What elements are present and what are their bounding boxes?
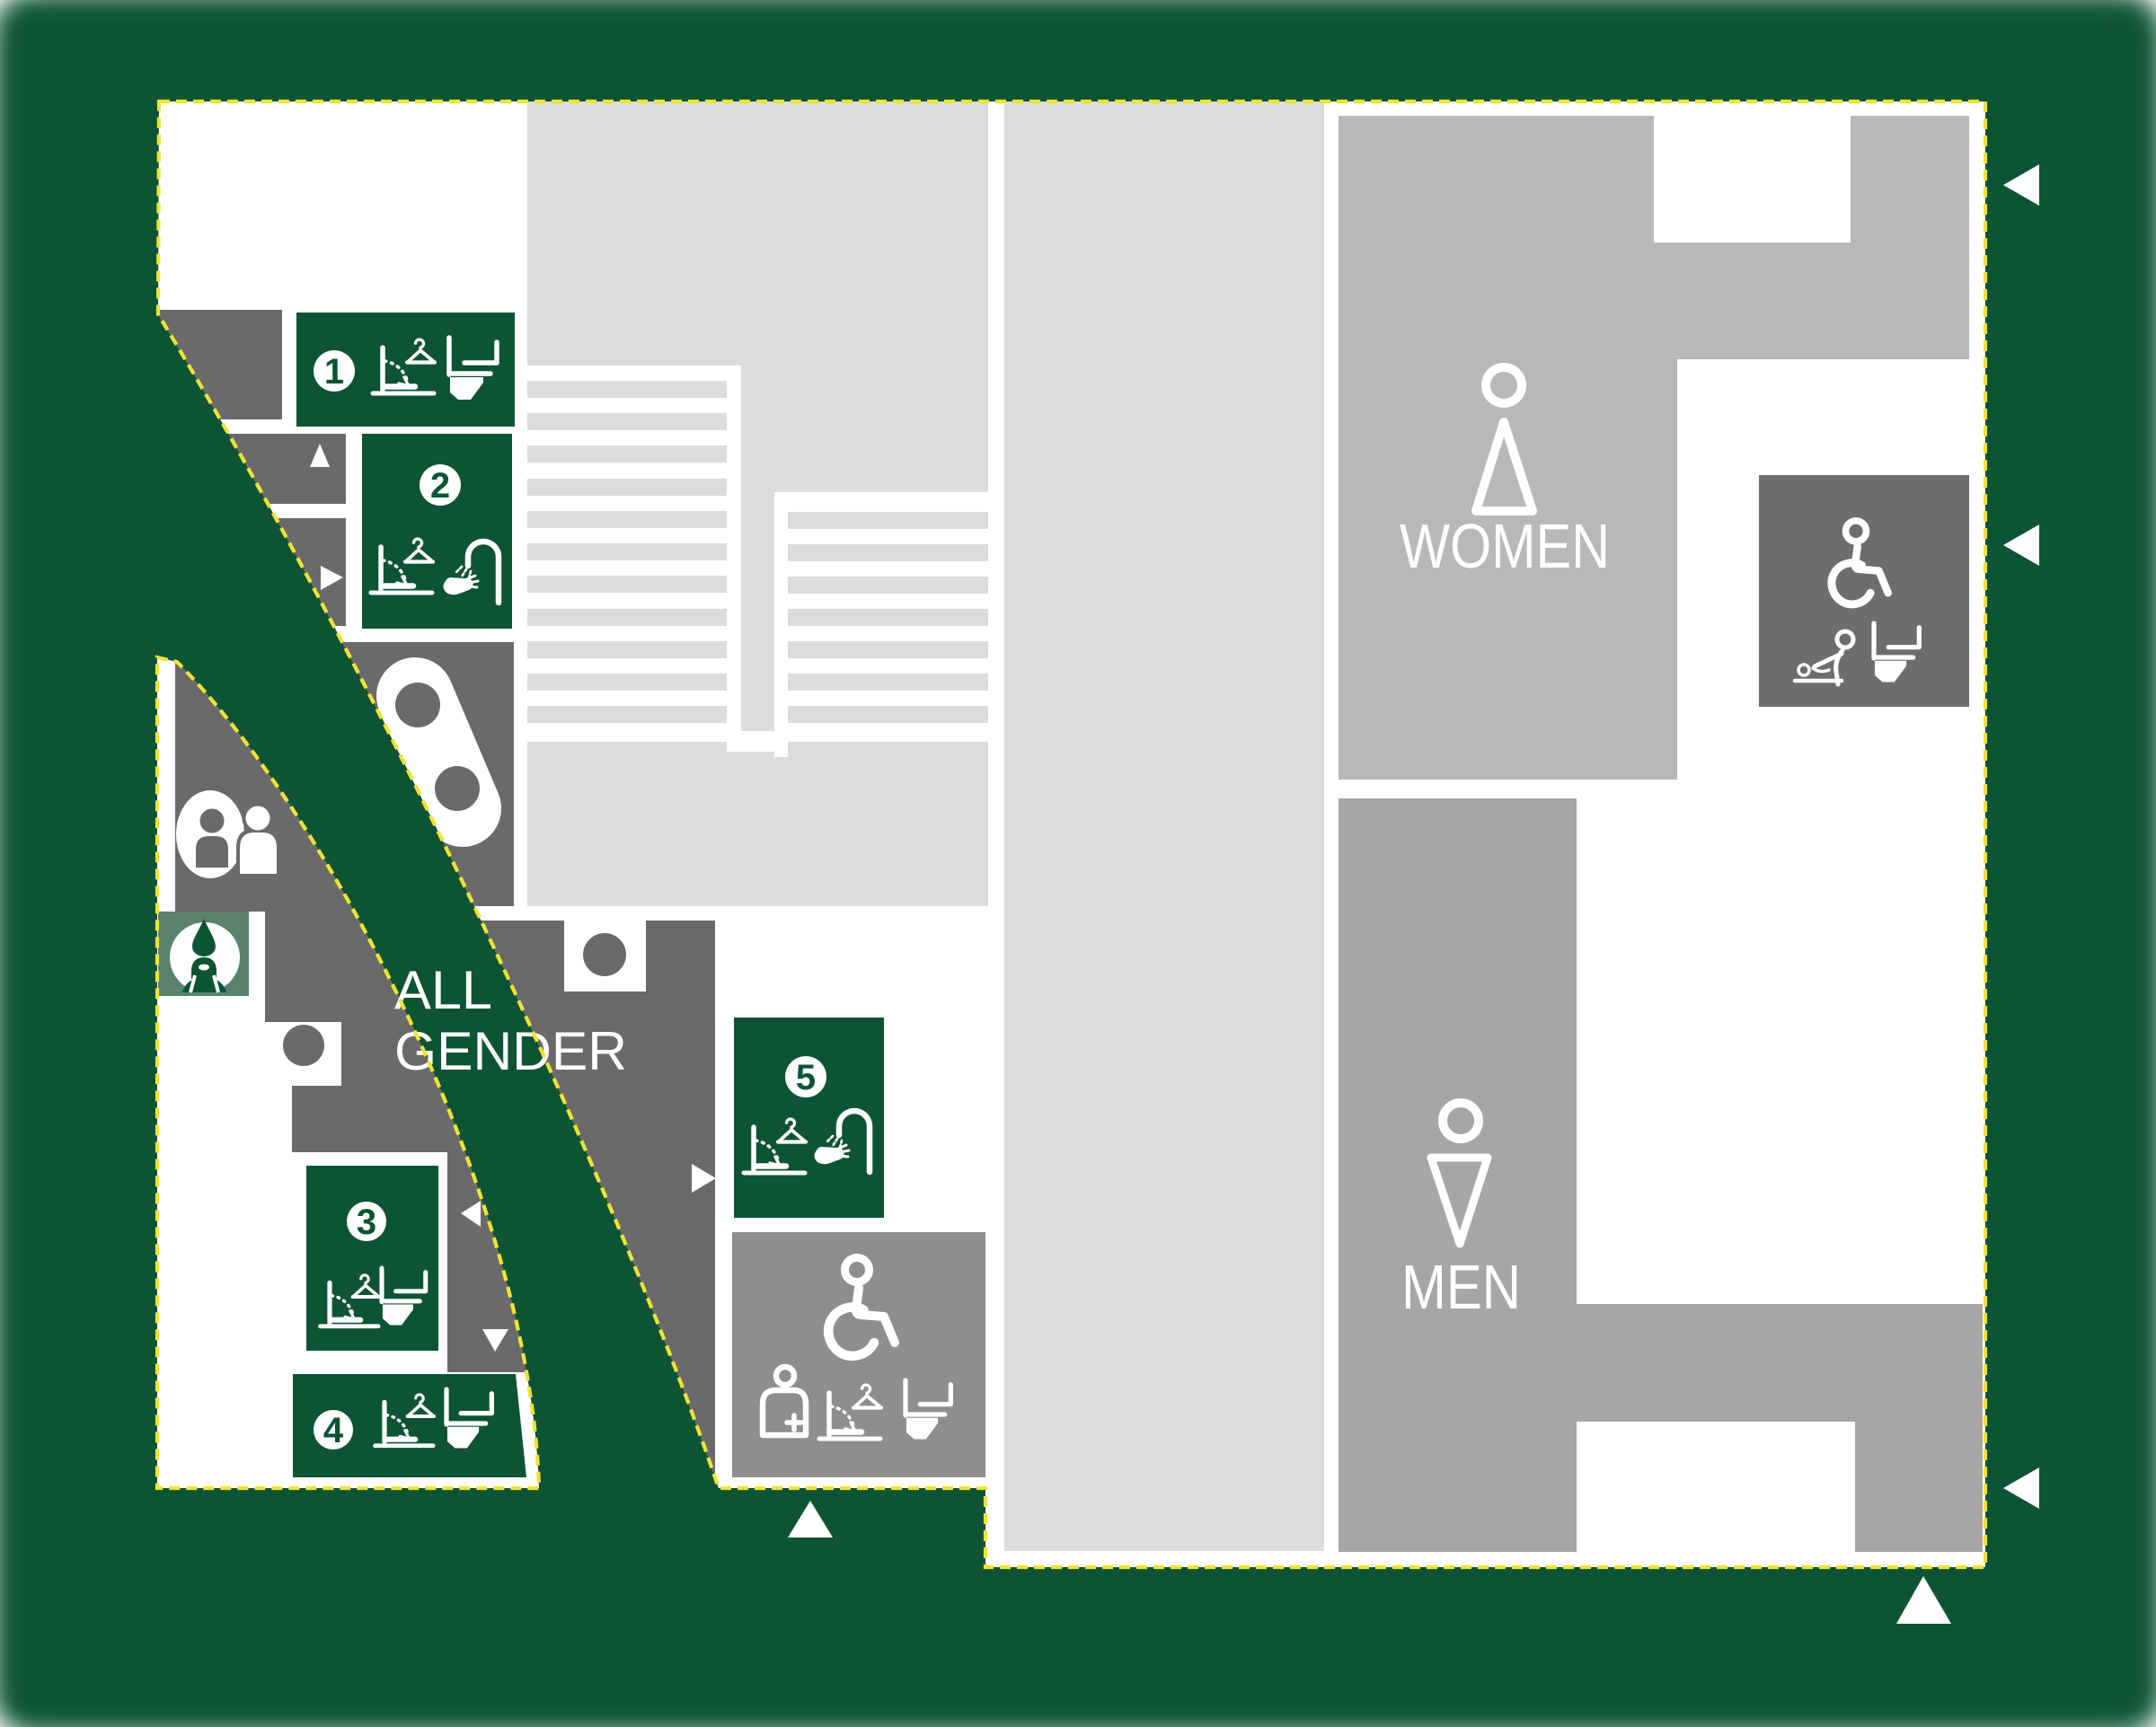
svg-text:3: 3 — [357, 1203, 376, 1242]
svg-text:4: 4 — [323, 1411, 344, 1450]
svg-text:GENDER: GENDER — [394, 1021, 627, 1081]
svg-text:MEN: MEN — [1401, 1252, 1521, 1322]
svg-text:2: 2 — [430, 466, 450, 506]
svg-text:WOMEN: WOMEN — [1400, 511, 1610, 581]
svg-text:ALL: ALL — [394, 960, 492, 1020]
svg-text:1: 1 — [324, 352, 344, 392]
svg-text:5: 5 — [796, 1058, 816, 1097]
